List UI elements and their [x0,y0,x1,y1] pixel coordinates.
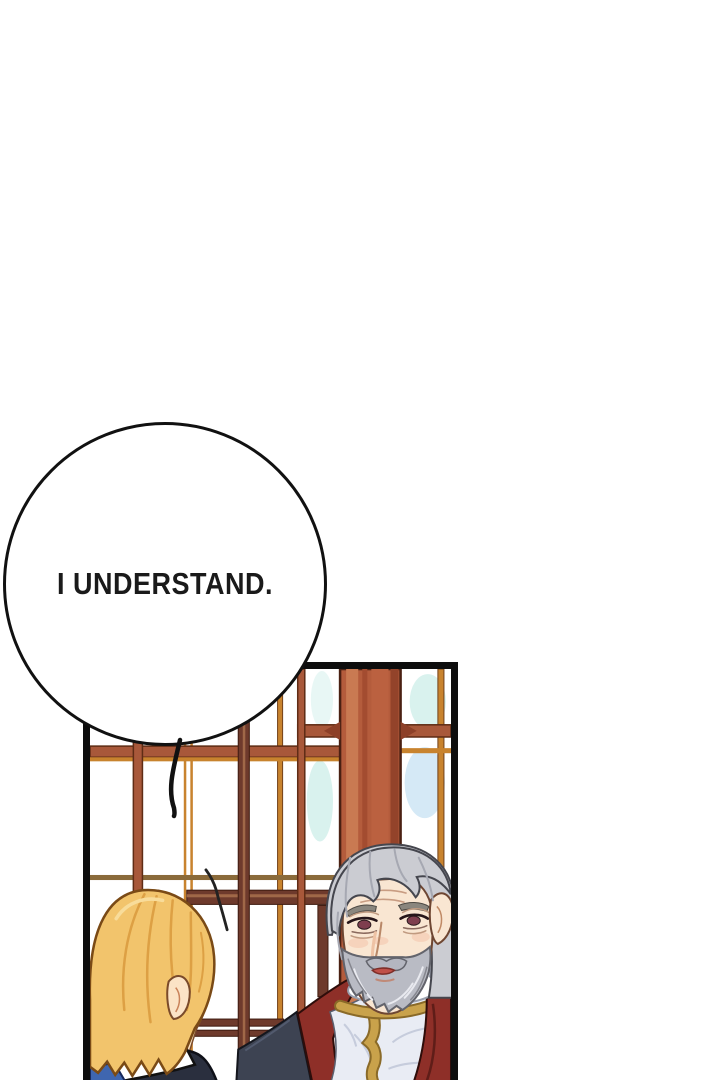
speech-bubble: I UNDERSTAND. [3,422,327,746]
speech-bubble-tail [158,736,202,820]
lips [372,968,394,974]
comic-page: I UNDERSTAND. [0,0,720,1080]
speech-bubble-text: I UNDERSTAND. [57,567,273,602]
